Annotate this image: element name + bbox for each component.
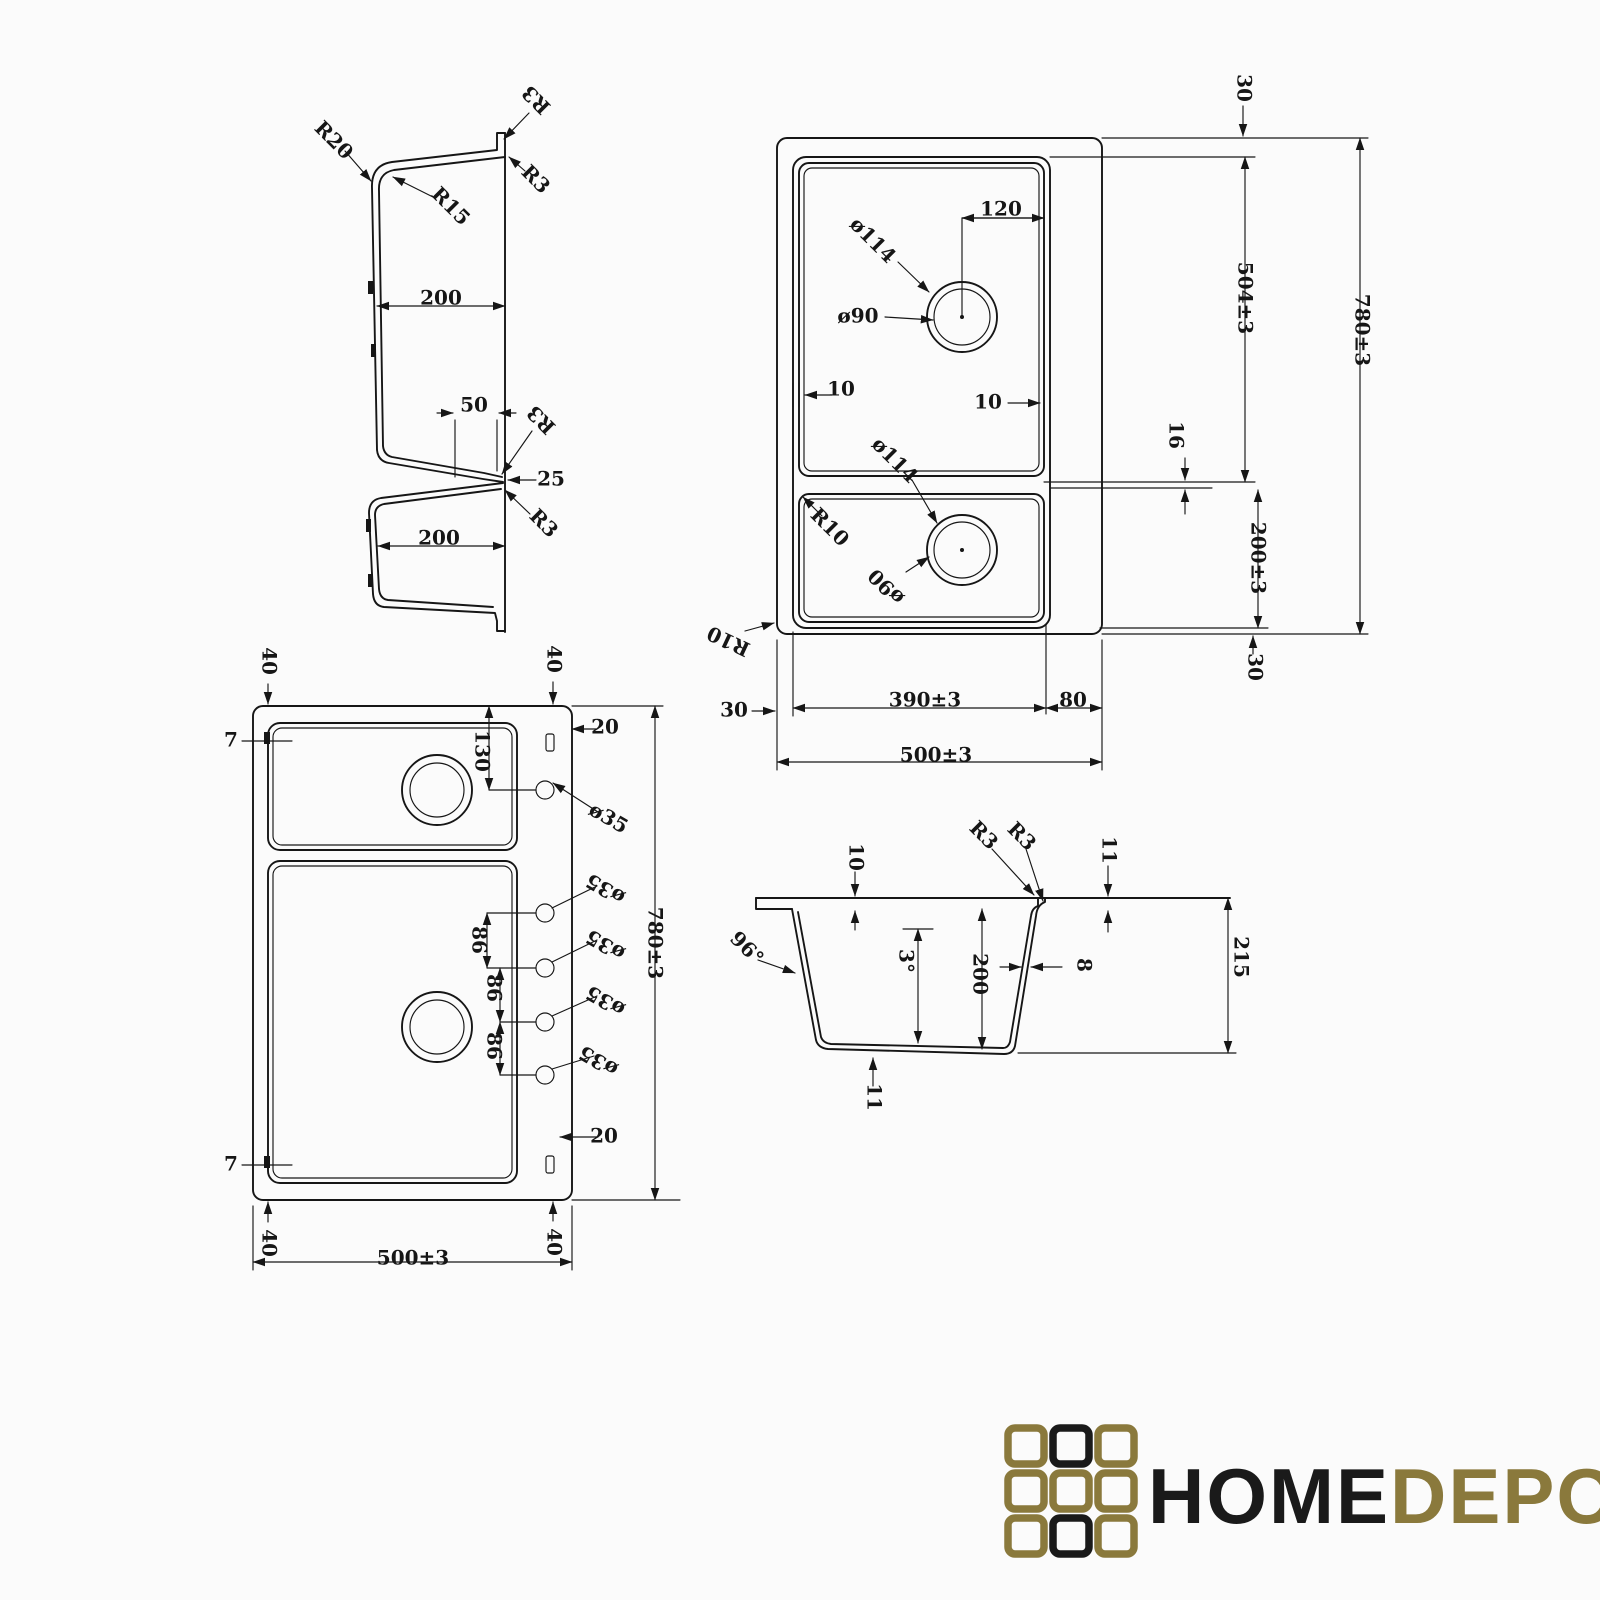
dimension-line xyxy=(960,548,964,552)
logo-text-depo: DEPO xyxy=(1390,1452,1600,1540)
dim-label: R3 xyxy=(525,504,564,543)
dim-label: 86 xyxy=(483,974,507,1002)
dim-label: 10 xyxy=(827,377,855,401)
lower-bowl-inner xyxy=(804,499,1039,617)
dim-label: 390±3 xyxy=(889,688,961,712)
lower-bowl xyxy=(799,494,1044,622)
clip-mark xyxy=(264,1156,270,1168)
dim-label: 40 xyxy=(543,645,567,673)
plan-drain-view: 30120ø114ø901010ø114R10ø90R10504±316200±… xyxy=(703,74,1374,770)
clip-mark xyxy=(368,281,373,294)
dimension-line xyxy=(393,177,433,197)
dim-label: R20 xyxy=(310,116,358,164)
dimension-line xyxy=(502,431,532,474)
sink-outline xyxy=(253,706,572,1200)
dim-label: 7 xyxy=(224,728,238,752)
dimension-line xyxy=(1026,849,1043,901)
logo-grid-square-gold xyxy=(1053,1473,1089,1509)
dimension-line xyxy=(745,623,774,631)
dim-label: 96° xyxy=(725,926,769,970)
dim-label: 86 xyxy=(468,926,492,954)
logo-text: HOMEDEPO xyxy=(1148,1452,1600,1540)
sink-outline xyxy=(777,138,1102,634)
dim-label: 200 xyxy=(420,286,462,310)
dim-label: 11 xyxy=(1098,836,1122,864)
dim-label: 20 xyxy=(590,1124,618,1148)
dim-label: 120 xyxy=(980,197,1022,221)
dim-label: 780±3 xyxy=(644,907,668,979)
dimension-line xyxy=(758,960,795,973)
dim-label: ø114 xyxy=(867,432,923,488)
dim-label: ø35 xyxy=(574,1041,622,1082)
logo-text-home: HOME xyxy=(1148,1452,1390,1540)
dim-label: 215 xyxy=(1230,936,1254,978)
dimension-line xyxy=(505,490,530,514)
clip-mark xyxy=(366,519,371,532)
dim-label: 40 xyxy=(543,1228,567,1256)
dim-label: R10 xyxy=(806,503,854,551)
logo-grid-square-black xyxy=(1053,1518,1089,1554)
clip-mark xyxy=(264,732,270,744)
dim-label: ø90 xyxy=(837,304,878,328)
logo-grid-square-black xyxy=(1053,1428,1089,1464)
dimension-line xyxy=(912,480,937,523)
deck-cut-edge xyxy=(756,898,792,909)
dimension-line xyxy=(504,113,529,139)
dim-label: ø35 xyxy=(581,981,629,1022)
dim-label: 504±3 xyxy=(1234,262,1258,334)
faucet-hole xyxy=(536,1066,554,1084)
dim-label: ø90 xyxy=(863,564,909,610)
clip-mark xyxy=(368,574,373,587)
dim-label: 40 xyxy=(258,1229,282,1257)
cross-section-view: 10R3R31196°3°200821511 xyxy=(725,816,1253,1111)
logo-grid-square-gold xyxy=(1008,1473,1044,1509)
dim-label: 8 xyxy=(1073,958,1097,972)
sink-technical-drawing: R20R15R3R320050R325R3200 xyxy=(0,0,1600,1600)
dim-label: ø114 xyxy=(845,212,901,268)
dim-label: 10 xyxy=(845,843,869,871)
lower-bowl-outer xyxy=(369,483,505,631)
dim-label: 500±3 xyxy=(900,743,972,767)
dim-label: 20 xyxy=(591,715,619,739)
dim-label: ø35 xyxy=(585,797,633,838)
dimension-line xyxy=(962,218,1044,317)
dim-label: R3 xyxy=(965,816,1004,855)
dim-label: R3 xyxy=(517,81,556,120)
dim-label: 40 xyxy=(258,647,282,675)
dim-label: R3 xyxy=(1003,817,1042,856)
dim-label: ø35 xyxy=(581,869,629,910)
dim-label: 130 xyxy=(471,730,495,772)
dimension-line xyxy=(898,262,929,292)
dimension-line xyxy=(885,317,933,320)
dim-label: 86 xyxy=(483,1032,507,1060)
logo-grid-square-gold xyxy=(1098,1518,1134,1554)
dim-label: R3 xyxy=(517,160,556,199)
dim-label: R3 xyxy=(522,401,561,440)
clip-mark xyxy=(371,344,376,357)
dim-label: 780±3 xyxy=(1351,294,1375,366)
faucet-hole xyxy=(536,959,554,977)
dim-label: 500±3 xyxy=(377,1246,449,1270)
dim-label: 10 xyxy=(974,390,1002,414)
dim-label: 11 xyxy=(863,1083,887,1111)
dim-label: 7 xyxy=(224,1152,238,1176)
dim-label: 80 xyxy=(1059,688,1087,712)
dim-label: 200 xyxy=(418,526,460,550)
logo-grid-icon xyxy=(1008,1428,1134,1554)
lower-drain-hole xyxy=(402,992,472,1062)
dim-label: R15 xyxy=(427,182,475,230)
lower-bowl-inner xyxy=(273,866,512,1178)
dim-label: 30 xyxy=(720,698,748,722)
dim-label: 3° xyxy=(895,949,919,973)
logo-grid-square-gold xyxy=(1008,1518,1044,1554)
homedepo-logo: HOMEDEPO xyxy=(1008,1428,1600,1554)
dim-label: ø35 xyxy=(581,925,629,966)
logo-grid-square-gold xyxy=(1098,1473,1134,1509)
dim-label: R10 xyxy=(703,621,753,662)
upper-drain-hole-inner xyxy=(410,763,464,817)
dimension-line xyxy=(509,157,525,171)
overflow-slot xyxy=(546,734,554,751)
dim-label: 50 xyxy=(460,393,488,417)
dim-label: 30 xyxy=(1233,74,1257,102)
dimension-line xyxy=(906,557,929,572)
faucet-hole xyxy=(536,781,554,799)
plan-faucet-view: 4040713020ø35ø35ø35ø35ø35868686780±32074… xyxy=(224,645,680,1270)
upper-drain-hole xyxy=(402,755,472,825)
faucet-hole xyxy=(536,1013,554,1031)
dim-label: 16 xyxy=(1165,421,1189,449)
dim-label: 200±3 xyxy=(1247,522,1271,594)
logo-grid-square-gold xyxy=(1098,1428,1134,1464)
faucet-hole xyxy=(536,904,554,922)
overflow-slot xyxy=(546,1156,554,1173)
dim-label: 25 xyxy=(537,467,565,491)
logo-grid-square-gold xyxy=(1008,1428,1044,1464)
dim-label: 30 xyxy=(1244,653,1268,681)
lower-drain-hole-inner xyxy=(410,1000,464,1054)
lower-bowl xyxy=(268,861,517,1183)
dim-label: 200 xyxy=(969,953,993,995)
profile-section-view: R20R15R3R320050R325R3200 xyxy=(310,81,565,632)
